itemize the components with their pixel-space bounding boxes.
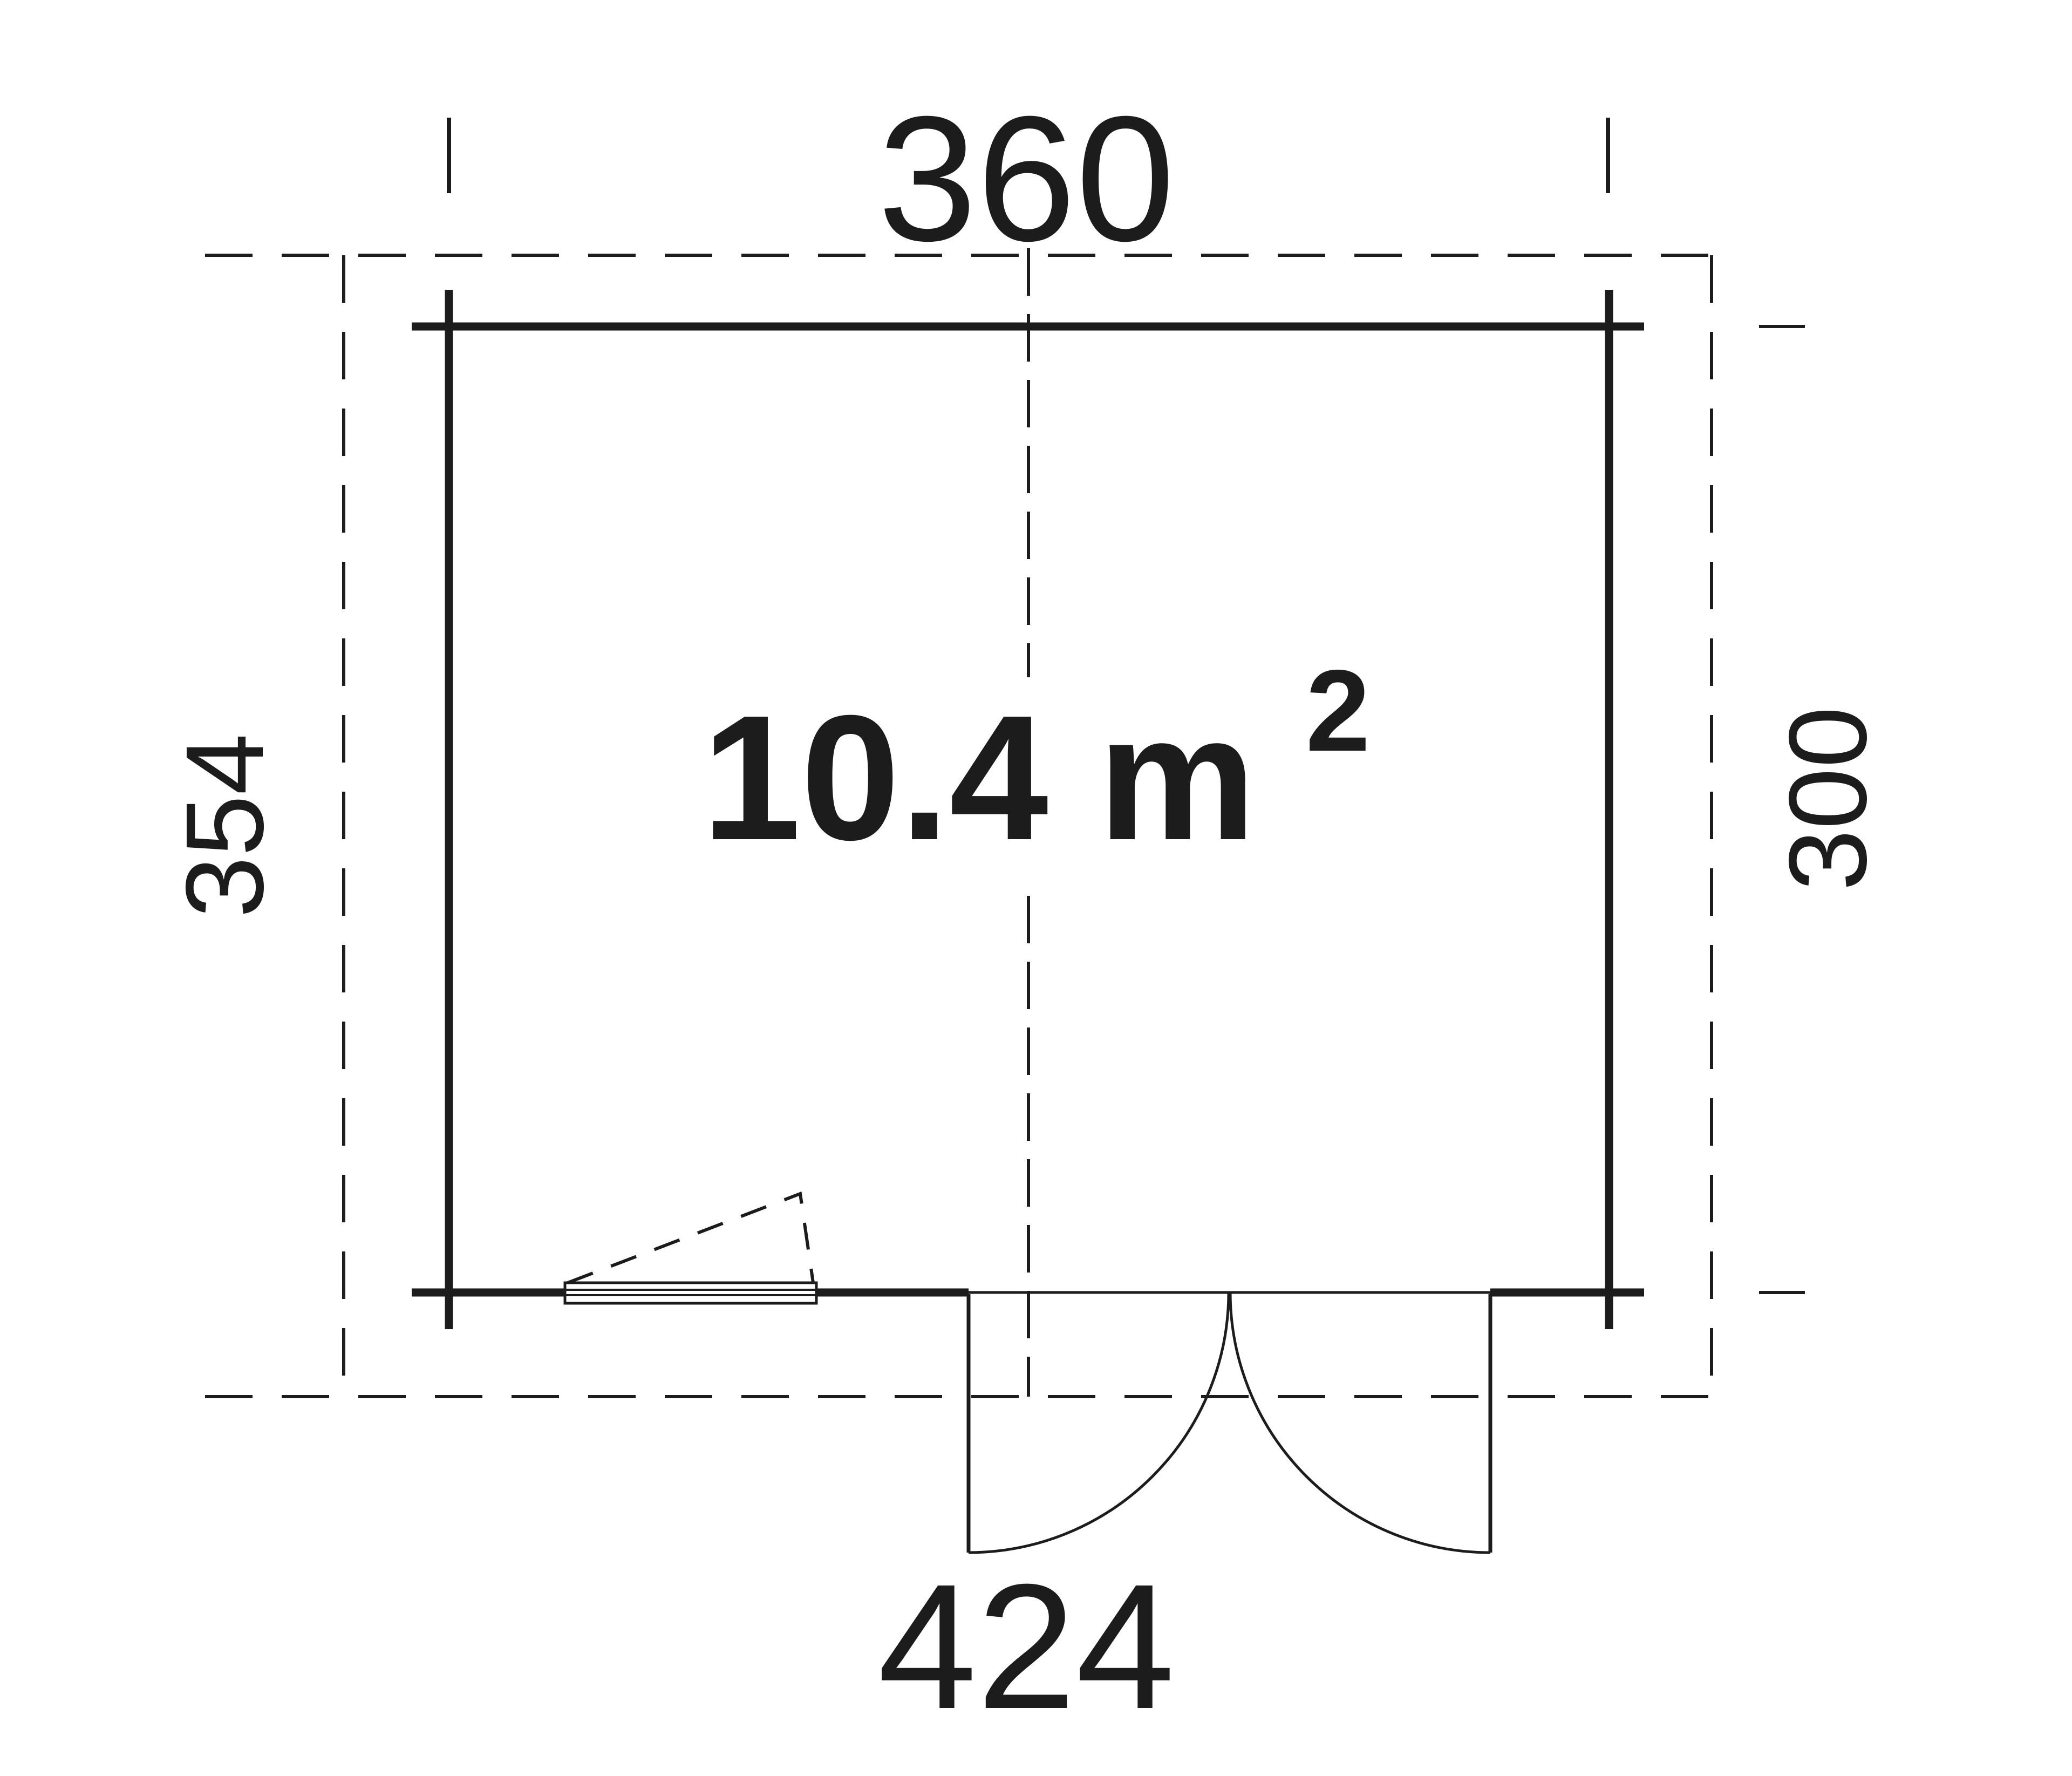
area-exponent: 2 [1306,645,1371,775]
double-door [969,1292,1490,1553]
dim-label-top: 360 [878,79,1175,278]
dim-label-right: 300 [1766,706,1890,891]
floor-plan-page: 360 424 354 300 10.4 m 2 [0,0,2072,1776]
area-value: 10.4 m [702,678,1256,877]
window-frame [565,1283,816,1303]
dim-label-bottom: 424 [878,1547,1175,1746]
area-label: 10.4 m 2 [702,645,1371,877]
door-swing-arc-right [1230,1292,1490,1553]
window-swing-line [568,1194,813,1283]
dim-label-left: 354 [163,733,287,918]
window [565,1194,816,1303]
door-swing-arc-left [969,1292,1229,1553]
floor-plan-canvas: 360 424 354 300 10.4 m 2 [0,0,2072,1776]
